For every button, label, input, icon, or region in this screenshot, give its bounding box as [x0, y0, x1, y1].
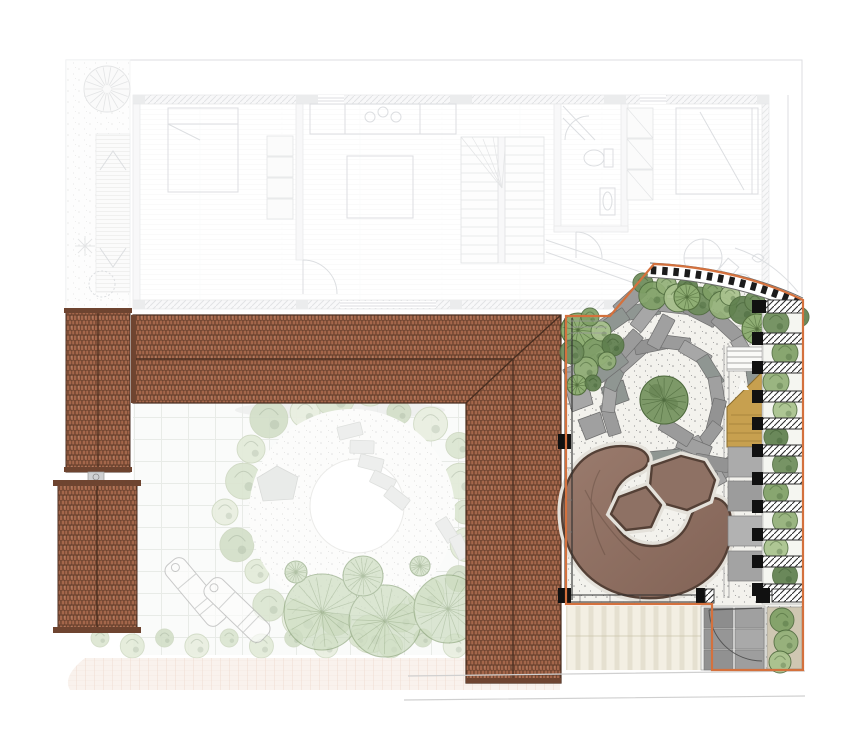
wood-deck — [96, 134, 130, 292]
shrub — [770, 608, 794, 632]
interior-wall — [296, 104, 303, 260]
shrub — [250, 400, 288, 438]
tree — [567, 375, 587, 395]
entry-tile-area — [701, 606, 765, 670]
shrub — [774, 630, 798, 654]
shrub — [220, 528, 254, 562]
tree — [640, 376, 688, 424]
shrub — [585, 375, 601, 391]
tree — [674, 284, 700, 310]
lower-planter — [767, 607, 802, 673]
central-tree — [640, 376, 688, 424]
shrub — [212, 499, 238, 525]
shrub — [156, 629, 174, 647]
plan-canvas-svg — [0, 0, 842, 736]
shrub — [220, 629, 238, 647]
tree — [285, 561, 307, 583]
shrub — [237, 435, 265, 463]
shrub — [185, 634, 209, 658]
organic-wood-deck — [562, 446, 731, 598]
plant-symbol — [75, 236, 95, 256]
landscape-plan — [0, 0, 842, 736]
closet-cells — [627, 108, 653, 200]
shrub — [120, 634, 144, 658]
shrub — [598, 352, 616, 370]
tree — [343, 556, 383, 596]
tree — [410, 556, 430, 576]
garden-tree-symbol — [84, 66, 130, 112]
